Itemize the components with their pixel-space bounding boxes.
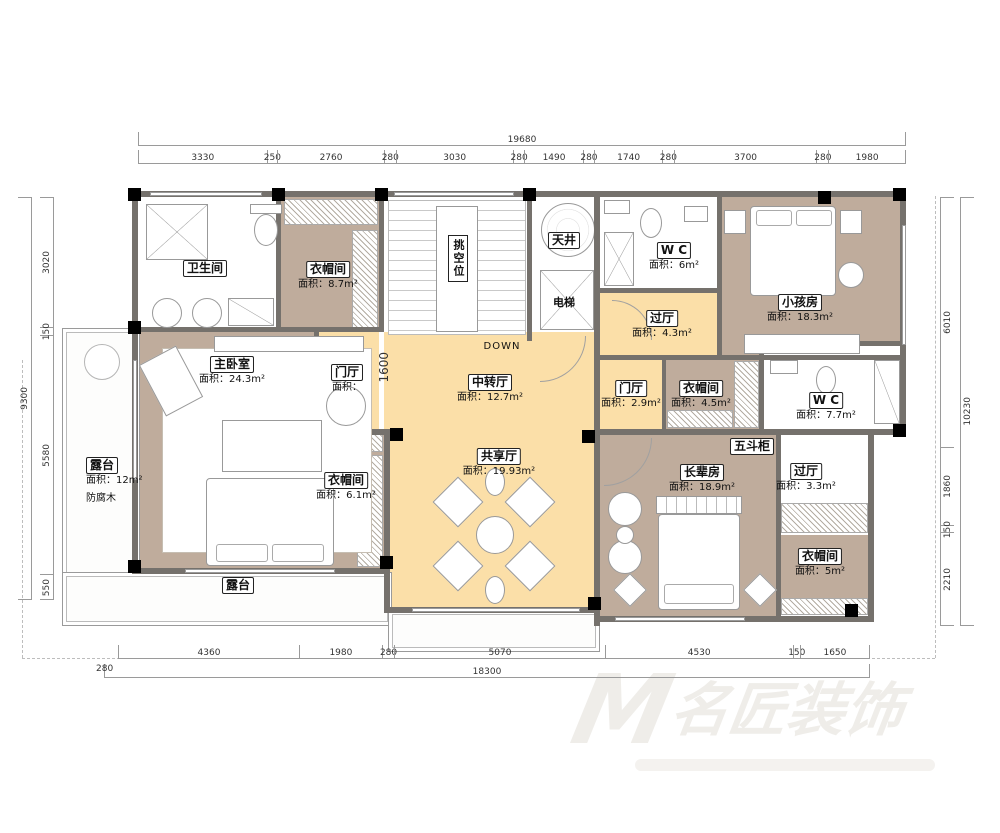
- room-name-label: 过厅: [646, 310, 678, 327]
- room-area-label: 面积：5m²: [795, 566, 845, 578]
- void-label: 挑空位: [448, 235, 468, 282]
- label-wc6: W C 面积：6m²: [649, 240, 699, 272]
- wall: [594, 288, 722, 293]
- label-skywell: 天井: [548, 230, 580, 249]
- label-hall-43: 过厅 面积：4.3m²: [632, 308, 692, 340]
- room-area-label: 面积：7.7m²: [796, 410, 856, 422]
- window: [902, 225, 906, 345]
- down-label: DOWN: [484, 341, 521, 352]
- closet-hatch: [781, 503, 868, 533]
- dim-seg: 5580: [40, 335, 53, 575]
- dim-seg: 2760: [277, 150, 384, 163]
- column: [523, 188, 536, 201]
- closet-hatch: [734, 361, 759, 428]
- dim-bottom-total: 18300: [104, 664, 870, 678]
- cabinet-kids: [744, 334, 860, 354]
- room-area-label: 面积：12.7m²: [457, 392, 523, 404]
- cabinet: [228, 298, 274, 326]
- watermark-subline: [635, 759, 935, 771]
- dim-seg: 1860: [941, 447, 954, 525]
- room-area-label: 面积：18.9m²: [669, 482, 735, 494]
- room-name-label: 长辈房: [680, 464, 724, 481]
- dim-seg: 9300: [18, 197, 31, 599]
- label-down: DOWN: [484, 335, 521, 353]
- stool: [616, 526, 634, 544]
- label-cloak-45: 衣帽间 面积：4.5m²: [671, 378, 731, 410]
- room-name-label: 门厅: [331, 364, 363, 381]
- nightstand: [840, 210, 862, 234]
- label-elders: 长辈房 面积：18.9m²: [669, 462, 735, 494]
- label-transfer: 中转厅 面积：12.7m²: [457, 372, 523, 404]
- column: [845, 604, 858, 617]
- wall: [594, 191, 600, 626]
- room-name-label: W C: [809, 392, 843, 409]
- column: [893, 188, 906, 201]
- room-area-label: 面积：4.5m²: [671, 398, 731, 410]
- room-name-label: 共享厅: [477, 448, 521, 465]
- room-area-label: 面积：: [331, 382, 363, 394]
- label-terrace-bottom: 露台: [222, 575, 254, 594]
- column: [128, 321, 141, 334]
- window: [394, 192, 514, 196]
- room-name-label: 露台: [86, 457, 118, 474]
- side-table: [485, 576, 505, 604]
- room-area-label: 面积：8.7m²: [298, 279, 358, 291]
- nightstand: [724, 210, 746, 234]
- plant-icon: [84, 344, 120, 380]
- shower-stall: [874, 360, 900, 424]
- dim-seg: 280: [816, 150, 828, 163]
- skywell-label: 天井: [548, 232, 580, 249]
- dim-seg: 150: [40, 327, 53, 334]
- window: [185, 569, 335, 573]
- dim-top-segments: 3330 250 2760 280 3030 280 1490 280 1740…: [138, 150, 906, 164]
- label-master: 主卧室 面积：24.3m²: [199, 354, 265, 386]
- dim-seg: 1650: [800, 645, 870, 658]
- dim-left-total: 9300: [18, 197, 32, 600]
- dim-seg: 6010: [941, 197, 954, 447]
- dim-left-segments: 3020 150 5580 550: [40, 197, 54, 600]
- dim-seg: 3020: [40, 197, 53, 327]
- room-name-label: 小孩房: [778, 294, 822, 311]
- dim-seg: 280: [662, 150, 674, 163]
- bidet: [684, 206, 708, 222]
- room-name-label: W C: [657, 242, 691, 259]
- dim-seg: 280: [513, 150, 525, 163]
- column: [375, 188, 388, 201]
- room-name-label: 衣帽间: [324, 472, 368, 489]
- column: [818, 191, 831, 204]
- room-name-label: 主卧室: [210, 356, 254, 373]
- wall: [662, 358, 666, 432]
- window: [412, 608, 580, 612]
- toilet-tank: [250, 204, 282, 214]
- dim-top-total: 19680: [138, 132, 906, 146]
- dim-seg: 18300: [104, 664, 870, 677]
- dim-right-total: 10230: [960, 197, 974, 626]
- room-area-label: 面积：24.3m²: [199, 374, 265, 386]
- room-name-label: 衣帽间: [306, 261, 350, 278]
- site-boundary-right: [935, 196, 936, 658]
- basin: [770, 360, 798, 374]
- room-area-label: 面积：6m²: [649, 260, 699, 272]
- watermark-logo: M: [565, 665, 680, 755]
- column: [128, 188, 141, 201]
- watermark: M名匠装饰: [575, 665, 995, 771]
- pillow: [756, 210, 792, 226]
- chest-label: 五斗柜: [730, 438, 774, 455]
- sink-icon: [152, 298, 182, 328]
- wall: [594, 355, 906, 360]
- watermark-text: 名匠装饰: [664, 665, 909, 755]
- dim-seg: 5070: [394, 645, 604, 658]
- toilet-icon: [254, 214, 278, 246]
- room-name-label: 中转厅: [468, 374, 512, 391]
- closet-hatch: [667, 410, 733, 428]
- toilet-icon: [640, 208, 662, 238]
- dim-seg: 19680: [138, 132, 906, 145]
- pillow: [272, 544, 324, 562]
- dim-bottom-lead: 280: [96, 664, 113, 674]
- room-area-label: 面积：19.93m²: [463, 466, 535, 478]
- washer: [604, 232, 634, 286]
- label-bathroom-top: 卫生间: [183, 258, 227, 277]
- room-area-label: 面积：18.3m²: [767, 312, 833, 324]
- label-hall-33: 过厅 面积：3.3m²: [776, 461, 836, 493]
- dim-seg: 280: [384, 150, 396, 163]
- terrace-note: 防腐木: [86, 493, 142, 505]
- room-area-label: 面积：12m²: [86, 475, 142, 487]
- cabinet-master: [214, 336, 364, 352]
- room-name-label: 过厅: [790, 463, 822, 480]
- room-area-label: 面积：6.1m²: [316, 490, 376, 502]
- bench-sofa: [222, 420, 322, 472]
- armchair: [608, 492, 642, 526]
- dim-seg: 1490: [524, 150, 582, 163]
- dim-seg: 1740: [594, 150, 662, 163]
- wall: [868, 435, 874, 622]
- column: [588, 597, 601, 610]
- wall: [776, 429, 781, 622]
- label-chest: 五斗柜: [730, 436, 774, 455]
- label-cloak-87: 衣帽间 面积：8.7m²: [298, 259, 358, 291]
- column: [582, 430, 595, 443]
- sink-icon: [192, 298, 222, 328]
- window: [150, 192, 262, 196]
- label-shared: 共享厅 面积：19.93m²: [463, 446, 535, 478]
- room-name-label: 卫生间: [183, 260, 227, 277]
- column: [272, 188, 285, 201]
- wall: [594, 429, 906, 435]
- wall: [132, 327, 384, 332]
- column: [893, 424, 906, 437]
- pillow: [216, 544, 268, 562]
- wall: [759, 343, 764, 432]
- window: [615, 617, 745, 621]
- dim-seg: 1980: [828, 150, 906, 163]
- room-area-label: 面积：4.3m²: [632, 328, 692, 340]
- closet-hatch: [284, 199, 378, 225]
- armchair: [608, 540, 642, 574]
- pillow: [796, 210, 832, 226]
- round-table-shared: [476, 516, 514, 554]
- dim-seg: 3700: [674, 150, 817, 163]
- dim-right-segments: 6010 1860 150 2210: [940, 197, 954, 626]
- label-foyer-29: 门厅 面积：2.9m²: [601, 378, 661, 410]
- dim-seg: 150: [941, 525, 954, 532]
- dim-seg: 4530: [605, 645, 793, 658]
- label-cloak-61: 衣帽间 面积：6.1m²: [316, 470, 376, 502]
- room-name-label: 衣帽间: [798, 548, 842, 565]
- label-wc77: W C 面积：7.7m²: [796, 390, 856, 422]
- dim-seg: 4360: [118, 645, 299, 658]
- dim-seg: 3330: [138, 150, 267, 163]
- label-terrace-left: 露台 面积：12m² 防腐木: [86, 455, 142, 504]
- shower-stall: [146, 204, 208, 260]
- dim-seg: 2210: [941, 532, 954, 625]
- dim-seg: 250: [267, 150, 278, 163]
- wall: [384, 429, 390, 613]
- column: [380, 556, 393, 569]
- wall: [527, 191, 532, 341]
- wall: [132, 191, 138, 331]
- room-area-label: 面积：3.3m²: [776, 481, 836, 493]
- column: [128, 560, 141, 573]
- dim-seg: 10230: [961, 197, 974, 625]
- headboard-cabinet: [656, 496, 742, 514]
- dim-seg: 280: [382, 645, 395, 658]
- wall: [379, 191, 384, 331]
- wall: [717, 191, 722, 358]
- basin: [604, 200, 630, 214]
- room-name-label: 露台: [222, 577, 254, 594]
- pillow: [664, 584, 734, 604]
- label-kids: 小孩房 面积：18.3m²: [767, 292, 833, 324]
- dim-seg: 550: [40, 574, 53, 599]
- dim-seg: 280: [583, 150, 595, 163]
- dim-bottom-segments: 4360 1980 280 5070 4530 150 1650: [118, 645, 870, 659]
- stair-dim-1600: 1600: [377, 352, 391, 383]
- dim-seg: 3030: [396, 150, 513, 163]
- label-elevator: 电梯: [553, 292, 575, 310]
- room-name-label: 门厅: [615, 380, 647, 397]
- label-foyer-master: 门厅 面积：: [331, 362, 363, 394]
- label-cloak-5: 衣帽间 面积：5m²: [795, 546, 845, 578]
- room-name-label: 衣帽间: [679, 380, 723, 397]
- column: [390, 428, 403, 441]
- elevator-label: 电梯: [553, 296, 575, 309]
- floorplan-canvas: M名匠装饰 挑空位: [0, 0, 1000, 833]
- dim-seg: 1980: [299, 645, 382, 658]
- dim-seg: 150: [793, 645, 800, 658]
- room-area-label: 面积：2.9m²: [601, 398, 661, 410]
- play-chair: [838, 262, 864, 288]
